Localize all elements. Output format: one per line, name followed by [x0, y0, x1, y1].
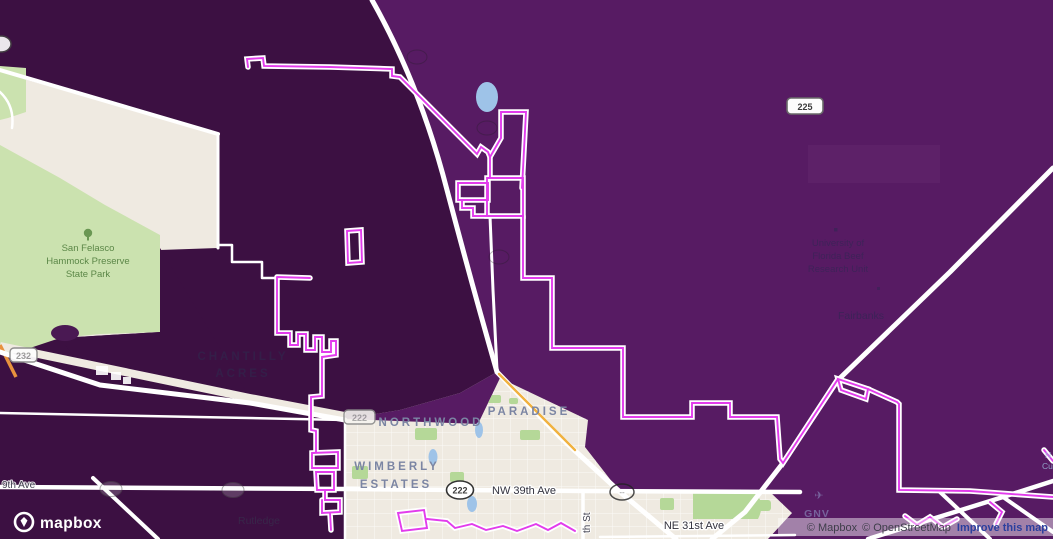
- attribution-improve-link[interactable]: Improve this map: [957, 522, 1048, 534]
- park-label-2: Hammock Preserve: [46, 256, 129, 267]
- shield-222-rect-partial: 222: [344, 410, 375, 424]
- attribution-bar: © Mapbox© OpenStreetMapImprove this map: [778, 518, 1053, 536]
- attribution-text: © Mapbox© OpenStreetMapImprove this map: [807, 522, 1048, 534]
- poi-fairbanks: Fairbanks: [838, 310, 884, 322]
- shield-232-partial: 232: [10, 348, 37, 362]
- university-poi-dot: [834, 228, 838, 232]
- poi-university-3: Research Unit: [808, 264, 869, 275]
- neighborhood-chantilly-2: ACRES: [215, 368, 270, 380]
- neighborhood-northwood: NORTHWOOD: [379, 417, 484, 429]
- street-9th-ave-fragment: 9th Ave: [2, 480, 36, 491]
- shield-225: 225: [787, 98, 823, 114]
- shield-222-oval-label: 222: [452, 486, 467, 496]
- park-label-3: State Park: [66, 269, 111, 280]
- neighborhood-rutledge: Rutledge: [238, 515, 280, 527]
- shield-222-rect-label: 222: [352, 413, 367, 423]
- poi-university-1: University of: [812, 238, 865, 249]
- edge-label-fragment-2: Cu: [1042, 461, 1053, 471]
- street-ne-31st-ave: NE 31st Ave: [664, 520, 724, 532]
- attribution-mapbox-link[interactable]: © Mapbox: [807, 522, 858, 534]
- shield-232-label: 232: [16, 351, 31, 361]
- shield-222-oval: 222: [447, 481, 474, 499]
- shield-225-label: 225: [797, 102, 812, 112]
- pond-top: [476, 82, 498, 112]
- poi-university-2: Florida Beef: [812, 251, 864, 262]
- map-svg[interactable]: 225 222 222 232 -- San Felasco Hammock P…: [0, 0, 1053, 539]
- attribution-osm-link[interactable]: © OpenStreetMap: [862, 522, 951, 534]
- map-canvas[interactable]: 225 222 222 232 -- San Felasco Hammock P…: [0, 0, 1053, 539]
- mapbox-wordmark: mapbox: [40, 515, 102, 532]
- neighborhood-paradise: PARADISE: [488, 406, 571, 418]
- street-nw-39th-ave: NW 39th Ave: [492, 485, 556, 497]
- edge-label-fragment-1: N: [1045, 450, 1051, 460]
- overlay-light-building: [808, 145, 940, 183]
- park-label-1: San Felasco: [62, 243, 115, 254]
- neighborhood-chantilly-1: CHANTILLY: [197, 351, 288, 363]
- fairbanks-poi-dot: [877, 287, 880, 290]
- neighborhood-wimberly-1: WIMBERLY: [354, 461, 440, 473]
- airplane-icon: ✈: [814, 490, 823, 502]
- street-th-st-fragment: th St: [582, 512, 593, 533]
- pond-under-overlay: [51, 325, 79, 341]
- neighborhood-wimberly-2: ESTATES: [360, 479, 432, 491]
- shield-ghost-dashes: --: [619, 488, 625, 497]
